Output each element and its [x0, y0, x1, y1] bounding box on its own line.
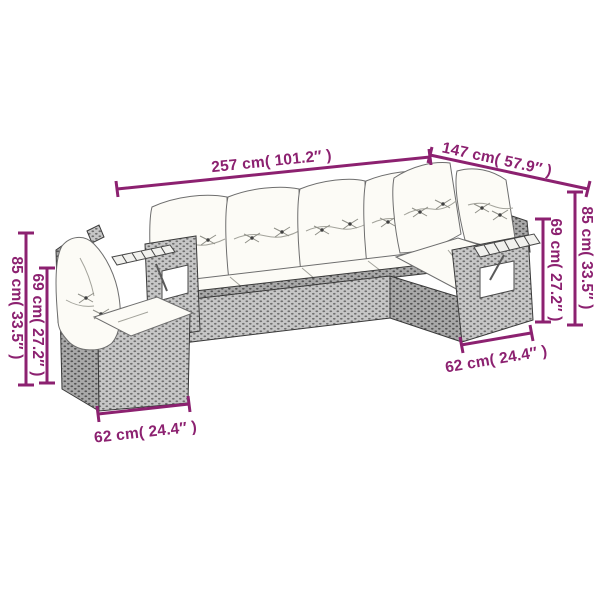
back-cushion-5	[393, 163, 461, 253]
dim-left-height-back: 69 cm( 27.2″ )	[29, 268, 55, 383]
dim-right-height-back: 69 cm( 27.2″ )	[535, 218, 564, 322]
dim-right-height-total: 85 cm( 33.5″ )	[567, 192, 595, 325]
dimension-diagram-canvas: 257 cm( 101.2″ ) 147 cm( 57.9″ ) 85 cm( …	[0, 0, 600, 600]
dim-right-seat-depth-label: 62 cm( 24.4″ )	[444, 343, 549, 377]
back-cushion-3	[298, 179, 368, 273]
dim-left-height-back-label: 69 cm( 27.2″ )	[29, 273, 46, 376]
dim-left-height-total-label: 85 cm( 33.5″ )	[8, 256, 25, 359]
dim-left-seat-depth-label: 62 cm( 24.4″ )	[93, 418, 198, 446]
dim-right-height-total-label: 85 cm( 33.5″ )	[578, 206, 595, 309]
back-cushion-2	[226, 187, 301, 281]
chair-back-cushion	[56, 237, 120, 349]
right-corner-section	[390, 163, 540, 342]
dim-right-height-back-label: 69 cm( 27.2″ )	[547, 218, 564, 321]
sofa-dimension-illustration: 257 cm( 101.2″ ) 147 cm( 57.9″ ) 85 cm( …	[0, 0, 600, 600]
